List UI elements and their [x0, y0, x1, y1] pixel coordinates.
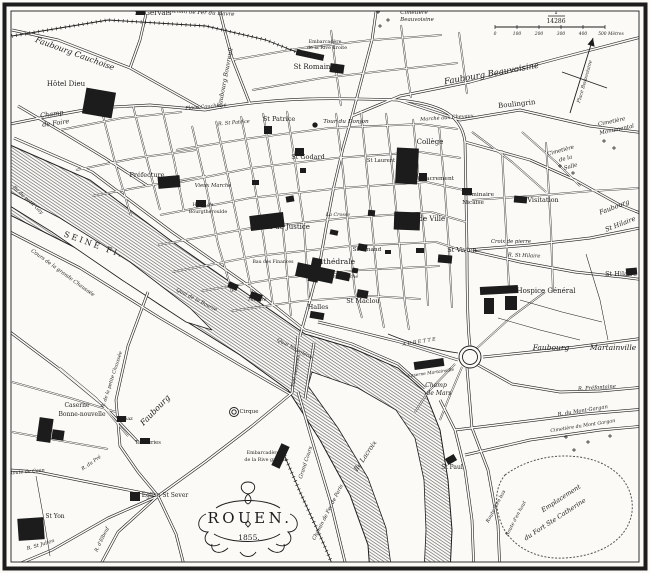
map-label: Cirque [240, 409, 259, 415]
map-label: Hôtel du [192, 201, 213, 208]
map-label: Nicaise [462, 200, 484, 206]
building [82, 88, 116, 119]
map-label: Hospice Général [516, 287, 576, 295]
fort-ste-catherine-outline [497, 456, 633, 558]
map-label: Champ [425, 382, 447, 389]
map-label: St Hilaire [605, 270, 637, 278]
map-label: St Vivien [447, 246, 477, 254]
circular-place [232, 410, 236, 414]
map-label: Faubourg [532, 343, 570, 352]
tower-symbol [313, 123, 317, 127]
map-label: St Godard [291, 153, 325, 161]
map-label: Préfecture [130, 171, 165, 179]
map-label: Tour du Donjon [323, 119, 369, 125]
map-label: St Yon [45, 513, 64, 520]
building [352, 268, 359, 274]
scale-tick-label: 200 [534, 32, 544, 37]
scale-tick-label: 100 [513, 32, 522, 37]
map-label: St Amand [353, 247, 382, 253]
map-label: Croix de pierre [491, 239, 531, 245]
map-label: Caserne [64, 402, 90, 409]
map-label: St Laurent [367, 158, 396, 164]
map-label: St Patrice [263, 115, 296, 123]
scale-tick-label: 0 [494, 32, 497, 37]
building [385, 250, 391, 254]
map-label: Martainville [589, 343, 637, 352]
rouen-1855-map-sheet: St GervaisChemin de Fer du HavreFaubourg… [0, 0, 650, 573]
map-label: Beauvoisine [399, 17, 434, 23]
map-year: 1855. [238, 533, 259, 542]
map-label: Tanneries [135, 440, 161, 446]
map-label: R. St Hilaire [507, 252, 541, 259]
map-label: Halles [308, 303, 329, 311]
map-label: Théâtre [247, 296, 266, 303]
map-label: Bonne-nouvelle [59, 411, 106, 418]
building [484, 298, 494, 314]
map-label: Visitation [526, 196, 558, 204]
map-label: Hôtel de Ville [397, 215, 445, 223]
map-label: Embarcadère [247, 449, 280, 456]
circular-place [463, 350, 478, 365]
map-label: Gaz [123, 416, 133, 422]
map-label: Archevêché [329, 273, 359, 280]
scale-fraction-denominator: 14286 [546, 18, 565, 25]
building [416, 248, 424, 253]
map-label: St Romain [294, 63, 331, 71]
map-label: St Sacrement [414, 176, 455, 182]
map-label: de la Rive droite [307, 45, 347, 51]
building [505, 296, 517, 310]
building [514, 195, 528, 203]
scale-tick-label: 400 [578, 32, 588, 37]
map-label: Bourgtheroulde [189, 209, 228, 215]
map-label: de la Rive gauche [244, 457, 287, 463]
building [252, 180, 259, 185]
building [130, 492, 140, 501]
map-label: Cathédrale [313, 257, 356, 266]
building [368, 210, 375, 217]
building [438, 254, 453, 263]
building [264, 126, 272, 134]
map-label: Église St Sever [142, 491, 189, 499]
map-label: St Maclou [346, 297, 379, 305]
scale-tick-label: 300 [557, 32, 566, 37]
map-label: de Mars [427, 390, 452, 397]
building [17, 517, 44, 541]
map-label: Bau des Finances [253, 259, 295, 265]
map-label: Collège [417, 138, 444, 146]
map-label: Vieux Marché [195, 182, 232, 189]
building [300, 168, 306, 173]
map-label: La Crosse [325, 212, 350, 218]
map-label: St Paul [441, 464, 463, 471]
map-label: Hôtel Dieu [47, 80, 86, 88]
scale-tick-label: 500 Mètres [598, 32, 624, 37]
map-label: Embarcadère [309, 38, 342, 45]
rouen-map-canvas: St GervaisChemin de Fer du HavreFaubourg… [0, 0, 650, 573]
building [51, 429, 64, 441]
map-label: Séminaire [464, 191, 495, 198]
map-label: Palais de Justice [252, 223, 310, 231]
